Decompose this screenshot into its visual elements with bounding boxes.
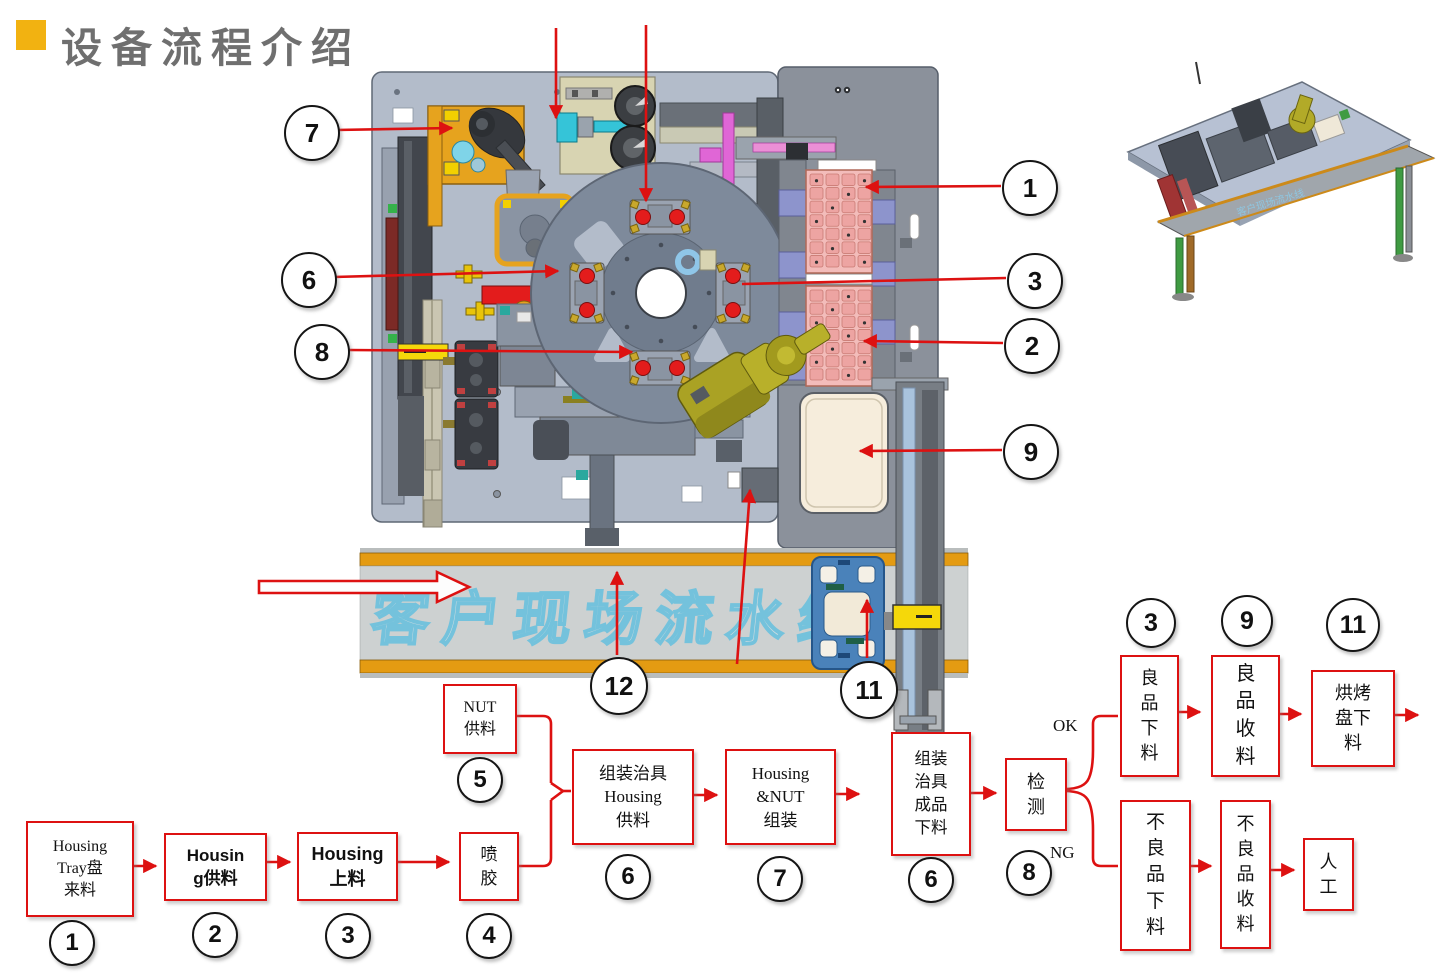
flow-box-label: Housing &NUT 组装	[752, 762, 810, 832]
page-title: 设备流程介绍	[16, 14, 361, 74]
callout-circle-6: 6	[281, 252, 337, 308]
callout-circle-12: 12	[590, 657, 648, 715]
step-circle-9b: 9	[1221, 595, 1273, 647]
step-circle-11b: 11	[1326, 598, 1380, 652]
flow-box-label: 良品下料	[1140, 666, 1160, 765]
flow-box-label: 检测	[1026, 770, 1046, 820]
step-circle-2: 2	[192, 912, 238, 958]
machine-3d-view: 客户现场流水线	[1128, 62, 1434, 301]
step-circle-6b: 6	[908, 857, 954, 903]
flow-box-good-collect: 良品收料	[1211, 655, 1280, 777]
callout-circle-2: 2	[1004, 318, 1060, 374]
flow-box-good-unload: 良品下料	[1120, 655, 1179, 777]
flow-box-label: Housin g供料	[187, 844, 245, 891]
flow-box-label: 烘烤盘下料	[1333, 681, 1373, 755]
flow-box-label: NUT 供料	[464, 697, 497, 741]
flow-box-manual: 人工	[1303, 838, 1354, 911]
slide-title: 设备流程介绍	[61, 14, 361, 74]
flow-box-label: 人工	[1319, 850, 1338, 900]
flow-box-label: 不良品下料	[1146, 810, 1166, 941]
step-circle-1: 1	[49, 920, 95, 966]
flow-box-label: 喷胶	[480, 843, 499, 890]
step-circle-3: 3	[325, 913, 371, 959]
step-circle-3b: 3	[1126, 598, 1176, 648]
flow-box-ng-unload: 不良品下料	[1120, 800, 1191, 951]
flow-box-inspection: 检测	[1005, 758, 1067, 831]
flow-box-bake-tray-unload: 烘烤盘下料	[1311, 670, 1395, 767]
flow-box-label: 组装治具成品下料	[913, 748, 949, 839]
step-circle-6: 6	[605, 854, 651, 900]
flow-box-nut-feed: NUT 供料	[443, 684, 517, 754]
pallet	[812, 557, 884, 669]
flow-box-label: Housing Tray盘 来料	[53, 836, 107, 902]
callout-circle-7: 7	[284, 105, 340, 161]
flow-box-jig-housing-feed: 组装治具 Housing 供料	[572, 749, 694, 845]
flow-box-label: 不良品收料	[1236, 812, 1255, 936]
callout-circle-11: 11	[840, 661, 898, 719]
title-bullet-icon	[16, 20, 46, 50]
step-circle-7: 7	[757, 856, 803, 902]
flow-box-label: 良品收料	[1235, 661, 1257, 771]
callout-circle-8: 8	[294, 324, 350, 380]
step-circle-4: 4	[466, 913, 512, 959]
step-circle-5: 5	[457, 757, 503, 803]
flow-box-label: Housing 上料	[312, 842, 384, 892]
flow-box-housing-nut-assembly: Housing &NUT 组装	[725, 749, 836, 845]
flow-direction-arrow	[259, 572, 469, 602]
callout-circle-3: 3	[1007, 253, 1063, 309]
flow-box-housing-feed: Housin g供料	[164, 833, 267, 901]
flow-box-ng-collect: 不良品收料	[1220, 800, 1271, 949]
slide: { "slide": { "title": "设备流程介绍", "accent_…	[0, 0, 1437, 979]
callout-circle-9: 9	[1003, 424, 1059, 480]
flow-box-glue: 喷胶	[459, 832, 519, 901]
flow-box-housing-tray: Housing Tray盘 来料	[26, 821, 134, 917]
ok-label: OK	[1053, 716, 1078, 736]
flow-box-jig-unload: 组装治具成品下料	[891, 732, 971, 856]
callout-circle-1: 1	[1002, 160, 1058, 216]
step-circle-8: 8	[1006, 850, 1052, 896]
flow-box-housing-load: Housing 上料	[297, 832, 398, 901]
flow-box-label: 组装治具 Housing 供料	[599, 762, 667, 832]
ng-label: NG	[1050, 843, 1075, 863]
